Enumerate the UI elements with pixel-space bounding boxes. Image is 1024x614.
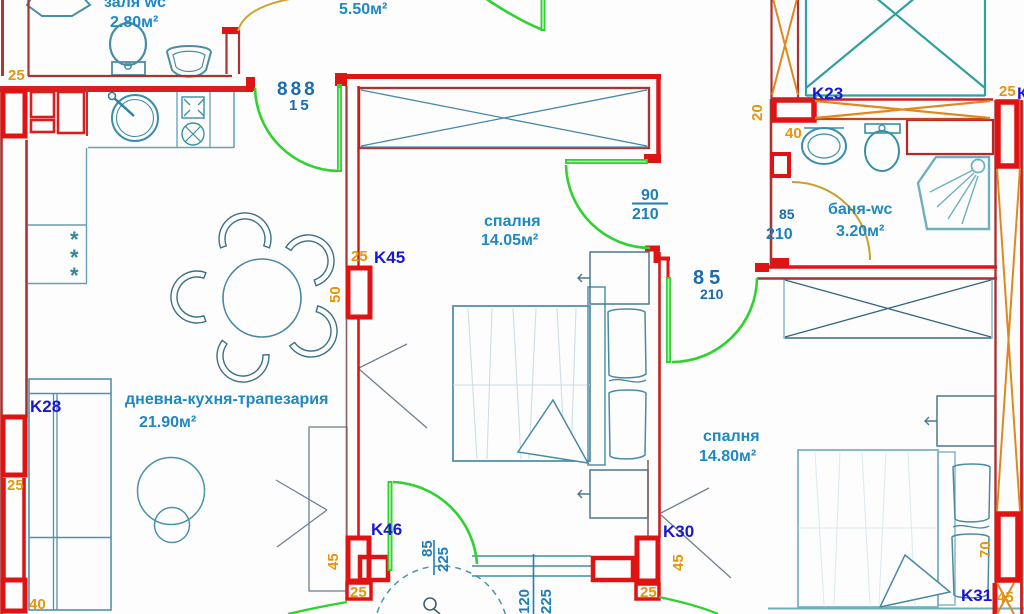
svg-text:К: К	[1017, 84, 1024, 103]
svg-text:25: 25	[350, 584, 367, 601]
svg-text:K46: K46	[371, 520, 402, 539]
svg-text:85: 85	[779, 206, 795, 222]
svg-text:14.05м²: 14.05м²	[481, 232, 538, 249]
svg-text:K23: K23	[812, 84, 843, 103]
svg-text:225: 225	[538, 589, 555, 614]
svg-text:210: 210	[766, 226, 793, 243]
svg-text:21.90м²: 21.90м²	[139, 414, 196, 431]
svg-text:спалня: спалня	[484, 213, 541, 230]
svg-text:K28: K28	[30, 397, 61, 416]
svg-text:14.80м²: 14.80м²	[699, 448, 756, 465]
svg-text:120: 120	[516, 589, 533, 614]
svg-text:45: 45	[670, 554, 687, 571]
svg-text:40: 40	[785, 125, 802, 142]
svg-text:спалня: спалня	[703, 428, 760, 445]
svg-text:K45: K45	[374, 248, 405, 267]
svg-text:45: 45	[325, 553, 342, 570]
svg-text:25: 25	[640, 584, 657, 601]
svg-text:15: 15	[289, 97, 312, 114]
svg-text:20: 20	[749, 104, 766, 121]
svg-text:5.50м²: 5.50м²	[339, 1, 387, 18]
svg-text:70: 70	[977, 541, 994, 558]
svg-text:3.20м²: 3.20м²	[836, 223, 884, 240]
svg-text:25: 25	[8, 67, 25, 84]
svg-text:2.80м²: 2.80м²	[110, 14, 158, 31]
svg-text:210: 210	[632, 206, 659, 223]
svg-text:K30: K30	[663, 522, 694, 541]
svg-text:45: 45	[997, 589, 1014, 606]
svg-text:25: 25	[7, 477, 24, 494]
svg-text:дневна-кухня-трапезария: дневна-кухня-трапезария	[125, 391, 328, 408]
svg-text:баня-wc: баня-wc	[828, 201, 893, 218]
svg-text:50: 50	[327, 286, 344, 303]
svg-text:25: 25	[351, 248, 368, 265]
svg-text:25: 25	[999, 83, 1016, 100]
svg-text:210: 210	[700, 286, 724, 302]
svg-text:90: 90	[641, 187, 659, 204]
svg-text:40: 40	[29, 596, 46, 613]
svg-text:*: *	[70, 263, 79, 288]
svg-text:K31: K31	[961, 586, 992, 605]
svg-text:заля wc: заля wc	[104, 0, 166, 11]
svg-text:225: 225	[435, 547, 452, 572]
